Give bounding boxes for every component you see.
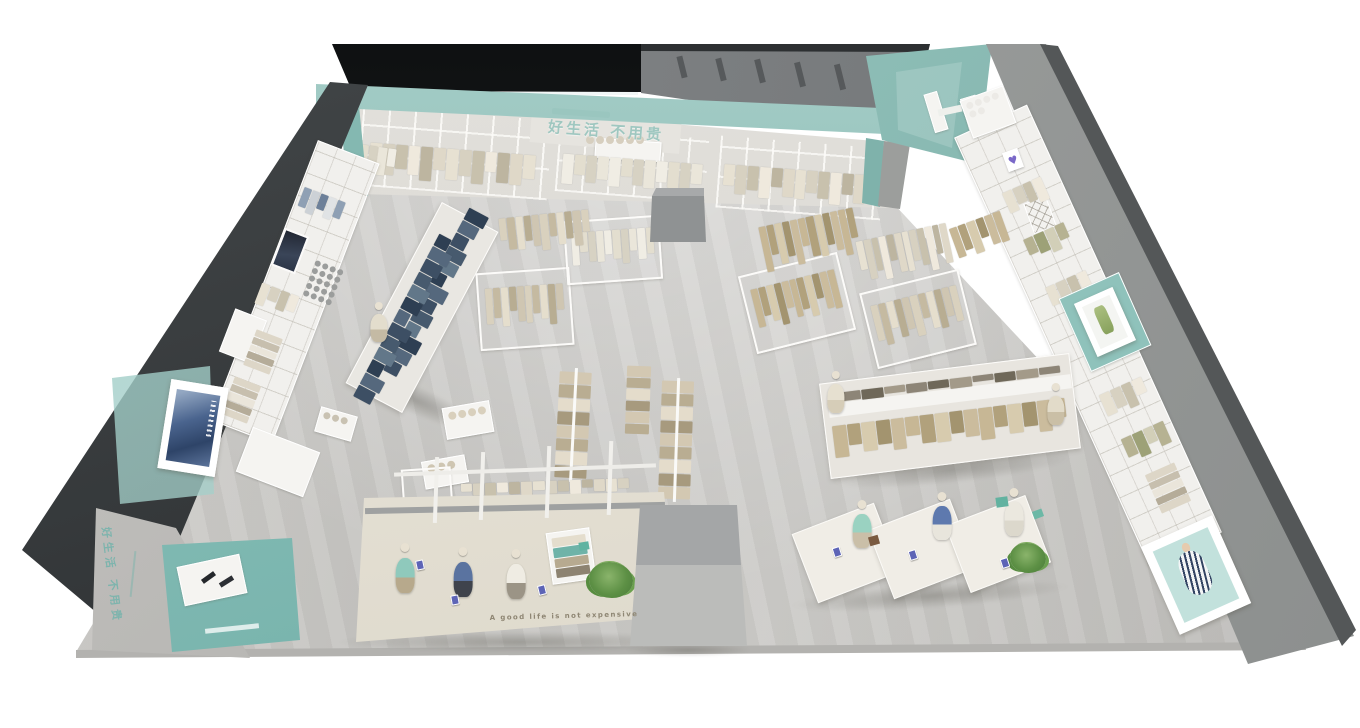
- teal-accessory: [578, 541, 589, 551]
- plant-right: [1010, 543, 1046, 573]
- stack-stand-3: [624, 365, 652, 436]
- mannequin-front-2: [451, 547, 475, 597]
- store-render: ♥ 好生活 不用贵 好生活 不用贵 A good life is not exp…: [0, 0, 1360, 728]
- mannequin-right-2: [930, 492, 954, 540]
- teal-hat: [995, 496, 1008, 508]
- garments-rack-1: [484, 282, 567, 329]
- mannequin-denim: [368, 302, 390, 342]
- shelf-unit-goods: [550, 533, 591, 580]
- plant-front: [589, 562, 633, 598]
- mannequin-front-1: [393, 543, 417, 593]
- price-tag-2: [450, 594, 460, 605]
- mannequin-right-3: [1002, 488, 1026, 536]
- mannequin-gondola-left: [825, 371, 847, 413]
- mannequin-gondola-right: [1045, 383, 1067, 425]
- garments-rack-8: [948, 210, 1013, 263]
- mannequin-front-3: [504, 549, 528, 599]
